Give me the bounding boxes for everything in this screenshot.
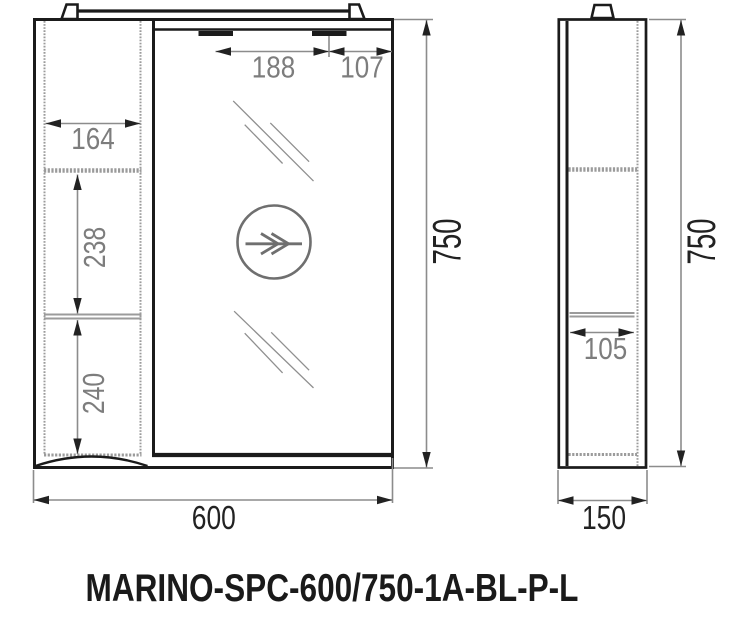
svg-text:105: 105 bbox=[584, 332, 627, 367]
svg-text:164: 164 bbox=[71, 122, 114, 157]
svg-text:150: 150 bbox=[582, 500, 626, 536]
svg-text:107: 107 bbox=[340, 51, 383, 86]
svg-text:750: 750 bbox=[425, 218, 469, 264]
svg-text:240: 240 bbox=[76, 373, 110, 414]
svg-text:238: 238 bbox=[77, 227, 111, 268]
svg-text:750: 750 bbox=[680, 218, 724, 264]
svg-text:600: 600 bbox=[192, 500, 236, 536]
svg-text:188: 188 bbox=[252, 51, 295, 86]
svg-text:MARINO-SPC-600/750-1A-BL-P-L: MARINO-SPC-600/750-1A-BL-P-L bbox=[86, 566, 579, 610]
